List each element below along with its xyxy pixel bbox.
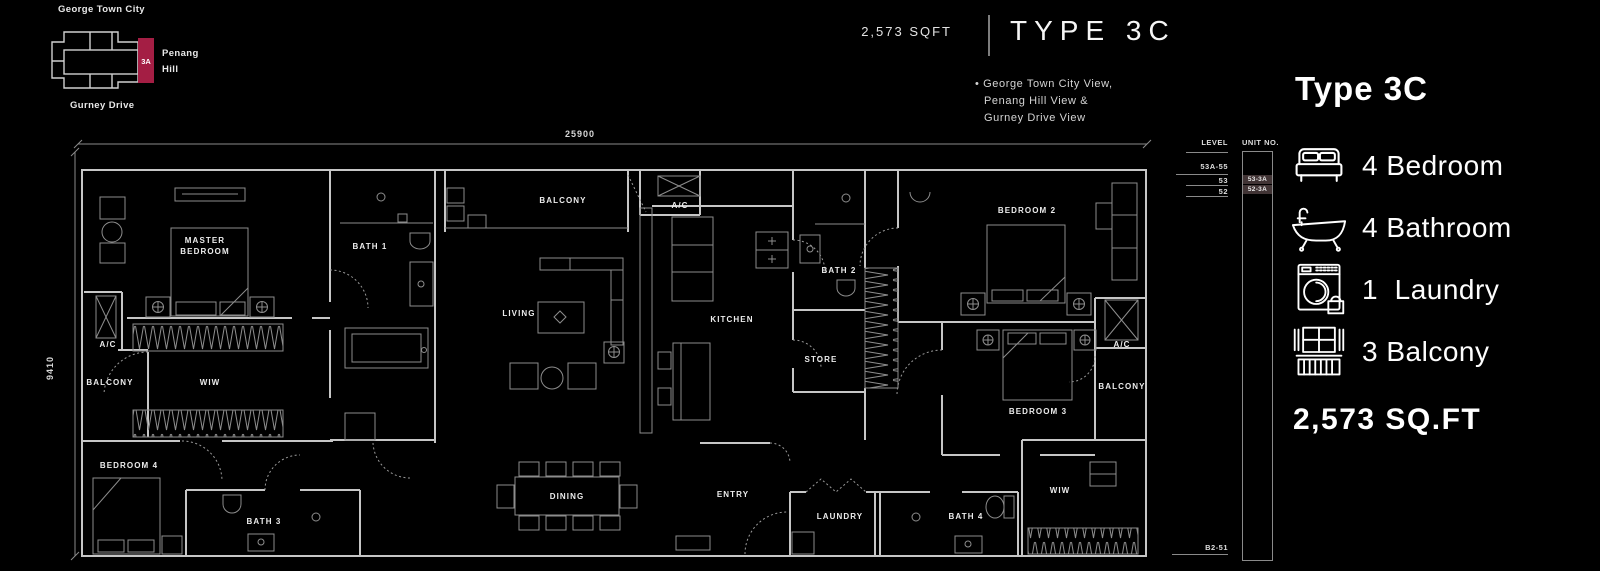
level-row: 53A-55	[1160, 162, 1228, 171]
table-rule	[1186, 196, 1228, 197]
feature-balcony: 3 Balcony	[1290, 324, 1489, 380]
balcony-icon	[1290, 324, 1348, 380]
feature-label: 1 Laundry	[1362, 274, 1499, 306]
level-row: 53	[1160, 176, 1228, 185]
table-rule	[1186, 185, 1228, 186]
info-panel: Type 3C 4 Bedroom	[1290, 70, 1590, 108]
feature-bathroom: 4 Bathroom	[1290, 200, 1512, 256]
room-label-living: LIVING	[502, 309, 535, 318]
bed-icon	[1290, 138, 1348, 194]
feature-laundry: 1 Laundry	[1290, 262, 1499, 318]
room-label-entry: ENTRY	[717, 490, 749, 499]
feature-label: 3 Balcony	[1362, 336, 1489, 368]
bathtub-icon	[1290, 200, 1348, 256]
plan-door-swings	[104, 175, 1095, 554]
plan-furniture	[93, 176, 1138, 554]
room-label-wiw-left: WIW	[200, 378, 221, 387]
unit-column	[1242, 151, 1273, 561]
feature-label: 4 Bedroom	[1362, 150, 1503, 182]
room-label-bath-1: BATH 1	[353, 242, 388, 251]
room-label-bedroom-2: BEDROOM 2	[998, 206, 1056, 215]
room-label-bedroom-4: BEDROOM 4	[100, 461, 158, 470]
table-rule	[1176, 174, 1228, 175]
room-label-master-bedroom: MASTER	[185, 236, 225, 245]
room-label-ac-top: A/C	[671, 201, 688, 210]
washing-machine-icon	[1290, 262, 1348, 318]
room-label-master-bedroom: BEDROOM	[180, 247, 229, 256]
room-label-ac-right: A/C	[1113, 340, 1130, 349]
unit-cell-highlight: 53-3A	[1243, 175, 1272, 184]
room-label-wiw-right: WIW	[1050, 486, 1071, 495]
room-label-balcony-left: BALCONY	[86, 378, 133, 387]
room-label-bedroom-3: BEDROOM 3	[1009, 407, 1067, 416]
basement-level-label: B2-51	[1160, 543, 1228, 552]
room-label-ac-left: A/C	[99, 340, 116, 349]
dimension-height-label: 9410	[45, 356, 55, 380]
room-label-kitchen: KITCHEN	[710, 315, 753, 324]
room-label-bath-4: BATH 4	[949, 512, 984, 521]
dimension-width-label: 25900	[565, 129, 595, 139]
floorplan-page: George Town City 3A Penang Hill Gurney D…	[0, 0, 1600, 571]
room-label-laundry: LAUNDRY	[817, 512, 864, 521]
level-unit-table: LEVEL UNIT NO. 53A-55 53 52 53-3A 52-3A …	[1160, 128, 1280, 568]
unit-type-title: Type 3C	[1295, 70, 1590, 108]
room-label-balcony-right: BALCONY	[1098, 382, 1145, 391]
room-label-bath-3: BATH 3	[247, 517, 282, 526]
table-rule	[1172, 554, 1228, 555]
room-label-store: STORE	[805, 355, 838, 364]
feature-label: 4 Bathroom	[1362, 212, 1512, 244]
table-rule	[1186, 152, 1228, 153]
level-row: 52	[1160, 187, 1228, 196]
room-label-dining: DINING	[550, 492, 585, 501]
feature-bedroom: 4 Bedroom	[1290, 138, 1503, 194]
unit-no-header: UNIT NO.	[1242, 138, 1279, 147]
level-header: LEVEL	[1160, 138, 1228, 147]
room-label-bath-2: BATH 2	[822, 266, 857, 275]
unit-cell-highlight: 52-3A	[1243, 185, 1272, 194]
unit-area-label: 2,573 SQ.FT	[1293, 403, 1481, 437]
room-label-balcony-top: BALCONY	[539, 196, 586, 205]
